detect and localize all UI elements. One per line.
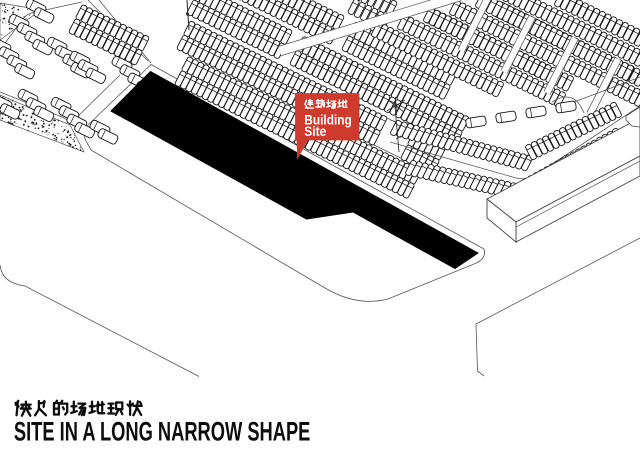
- svg-text:SITE IN A LONG NARROW SHAPE: SITE IN A LONG NARROW SHAPE: [14, 417, 311, 447]
- svg-text:Site: Site: [304, 124, 326, 140]
